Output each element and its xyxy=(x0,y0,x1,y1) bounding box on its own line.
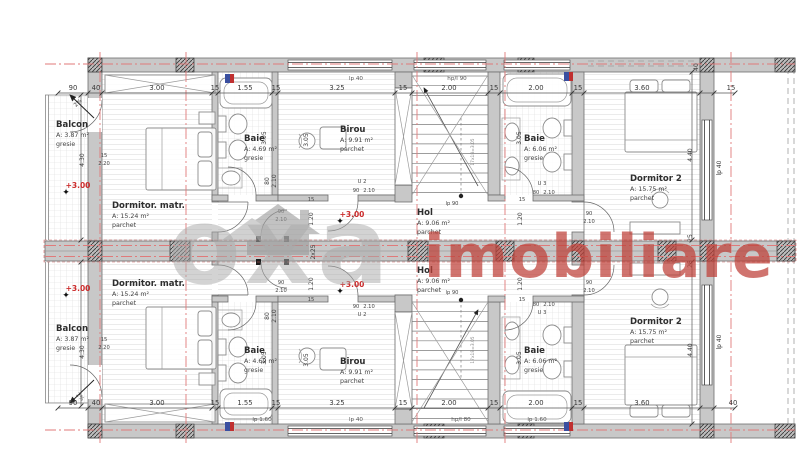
dim: 3.00 xyxy=(149,84,164,92)
dim: 1.55 xyxy=(237,84,252,92)
dim: 15 xyxy=(574,84,583,92)
dim-sub: hp/l 80 xyxy=(451,417,471,423)
dim: 15 xyxy=(574,399,583,407)
room-area-baie-mare-2: A: 6.06 m² xyxy=(524,358,557,365)
dim-rotated: 80 xyxy=(264,177,271,185)
dim-tiny: 15 xyxy=(519,297,526,303)
room-area-dormitor-matr-1: A: 15.24 m² xyxy=(112,213,149,220)
room-floor-baie-mica-2: gresie xyxy=(244,367,263,374)
dim: 40 xyxy=(92,399,101,407)
dim-rotated: 3.05 xyxy=(516,351,523,365)
dim: 2.00 xyxy=(441,399,456,407)
room-name-baie-mare-1: Baie xyxy=(524,134,545,144)
room-area-balcon-1: A: 3.87 m² xyxy=(56,132,89,139)
dim-tiny: 15 xyxy=(101,337,108,343)
dim: 2.00 xyxy=(528,399,543,407)
floor-plan-page: BalconA: 3.87 m²gresieDormitor. matr.A: … xyxy=(0,0,800,476)
dim-rotated: 3.05 xyxy=(516,131,523,145)
stair-note: 17x18=3.05 xyxy=(470,336,476,363)
dim-tiny: 90 xyxy=(586,211,593,217)
room-area-baie-mare-1: A: 6.06 m² xyxy=(524,146,557,153)
room-floor-birou-2: parchet xyxy=(340,378,365,385)
watermark-brand: oxa xyxy=(168,185,393,308)
dim-sub: lp 1.60 xyxy=(252,417,272,423)
dim: 90 xyxy=(69,399,78,407)
stair-note: 17x18=3.05 xyxy=(470,138,476,165)
room-area-balcon-2: A: 3.87 m² xyxy=(56,336,89,343)
dim-tiny: 80 xyxy=(533,302,540,308)
room-floor-baie-mica-1: gresie xyxy=(244,155,263,162)
dim-rotated: 40 xyxy=(693,63,700,71)
dim: 15 xyxy=(399,399,408,407)
dim: 1.55 xyxy=(237,399,252,407)
dim: 15 xyxy=(490,84,499,92)
dim: 15 xyxy=(272,399,281,407)
dim: 90 xyxy=(69,84,78,92)
dim-tiny: U 2 xyxy=(358,312,367,318)
level-star-icon: ✦ xyxy=(62,188,70,198)
room-floor-dormitor-matr-1: parchet xyxy=(112,222,137,229)
dim-rotated: lp 40 xyxy=(716,160,723,175)
watermark-suffix: imobiliare xyxy=(424,222,774,292)
dim-rotated: 80 xyxy=(264,312,271,320)
dim-rotated: 4.40 xyxy=(687,343,694,357)
room-name-dormitor-2-2: Dormitor 2 xyxy=(630,317,682,327)
room-name-birou-2: Birou xyxy=(340,357,365,367)
dim: 15 xyxy=(211,84,220,92)
room-floor-dormitor-2-1: parchet xyxy=(630,195,655,202)
room-name-hol-1: Hol xyxy=(417,208,433,218)
room-floor-balcon-2: gresie xyxy=(56,345,75,352)
dim-rotated: 3.05 xyxy=(261,131,268,145)
room-area-birou-2: A: 9.91 m² xyxy=(340,369,373,376)
room-area-birou-1: A: 9.91 m² xyxy=(340,137,373,144)
dim-sub: hp/l 90 xyxy=(447,76,467,82)
dim: 15 xyxy=(272,84,281,92)
dim: 40 xyxy=(729,399,738,407)
room-name-birou-1: Birou xyxy=(340,125,365,135)
level-star-icon: ✦ xyxy=(62,291,70,301)
dim: 3.25 xyxy=(329,84,344,92)
dim: 15 xyxy=(727,84,736,92)
dim-tiny: 2.10 xyxy=(543,302,555,308)
dim: 2.00 xyxy=(441,84,456,92)
dim-tiny: U 3 xyxy=(538,181,547,187)
dim-rotated: 4.30 xyxy=(79,153,86,167)
room-area-dormitor-matr-2: A: 15.24 m² xyxy=(112,291,149,298)
room-floor-balcon-1: gresie xyxy=(56,141,75,148)
dim-tiny: 80 xyxy=(533,190,540,196)
room-area-dormitor-2-2: A: 15.75 m² xyxy=(630,329,667,336)
dim-sub: lp 1.60 xyxy=(527,417,547,423)
dim-rotated: 4.30 xyxy=(79,345,86,359)
dim-tiny: 2.10 xyxy=(543,190,555,196)
dim-tiny: U 3 xyxy=(538,310,547,316)
dim: 15 xyxy=(399,84,408,92)
room-name-balcon-2: Balcon xyxy=(56,324,88,334)
room-floor-baie-mare-1: gresie xyxy=(524,155,543,162)
dim-rotated: 2.10 xyxy=(271,309,278,323)
room-floor-baie-mare-2: gresie xyxy=(524,367,543,374)
dim: 2.00 xyxy=(528,84,543,92)
dim: 15 xyxy=(490,399,499,407)
dim: 3.60 xyxy=(634,399,649,407)
dim-rotated: 3.05 xyxy=(261,351,268,365)
room-area-baie-mica-1: A: 4.69 m² xyxy=(244,146,277,153)
dim-rotated: lp 40 xyxy=(716,334,723,349)
dim-rotated: 3.05 xyxy=(303,133,310,147)
dim: 3.25 xyxy=(329,399,344,407)
dim: 3.60 xyxy=(634,84,649,92)
dim-sub: lp 40 xyxy=(349,76,363,82)
dim: 15 xyxy=(211,399,220,407)
dim-rotated: 4.40 xyxy=(687,148,694,162)
dim-tiny: lp 90 xyxy=(446,201,459,207)
dim-tiny: 2.20 xyxy=(98,345,110,351)
room-name-balcon-1: Balcon xyxy=(56,120,88,130)
room-floor-dormitor-matr-2: parchet xyxy=(112,300,137,307)
room-area-dormitor-2-1: A: 15.75 m² xyxy=(630,186,667,193)
room-name-dormitor-2-1: Dormitor 2 xyxy=(630,174,682,184)
floor-plan-drawing: BalconA: 3.87 m²gresieDormitor. matr.A: … xyxy=(0,0,800,476)
dim-tiny: 15 xyxy=(519,197,526,203)
dim-tiny: 15 xyxy=(101,153,108,159)
dim-rotated: 3.05 xyxy=(303,353,310,367)
dim: 40 xyxy=(92,84,101,92)
dim: 3.00 xyxy=(149,399,164,407)
room-floor-dormitor-2-2: parchet xyxy=(630,338,655,345)
room-floor-birou-1: parchet xyxy=(340,146,365,153)
room-name-baie-mare-2: Baie xyxy=(524,346,545,356)
dim-tiny: 2.20 xyxy=(98,161,110,167)
dim-sub: lp 40 xyxy=(349,417,363,423)
